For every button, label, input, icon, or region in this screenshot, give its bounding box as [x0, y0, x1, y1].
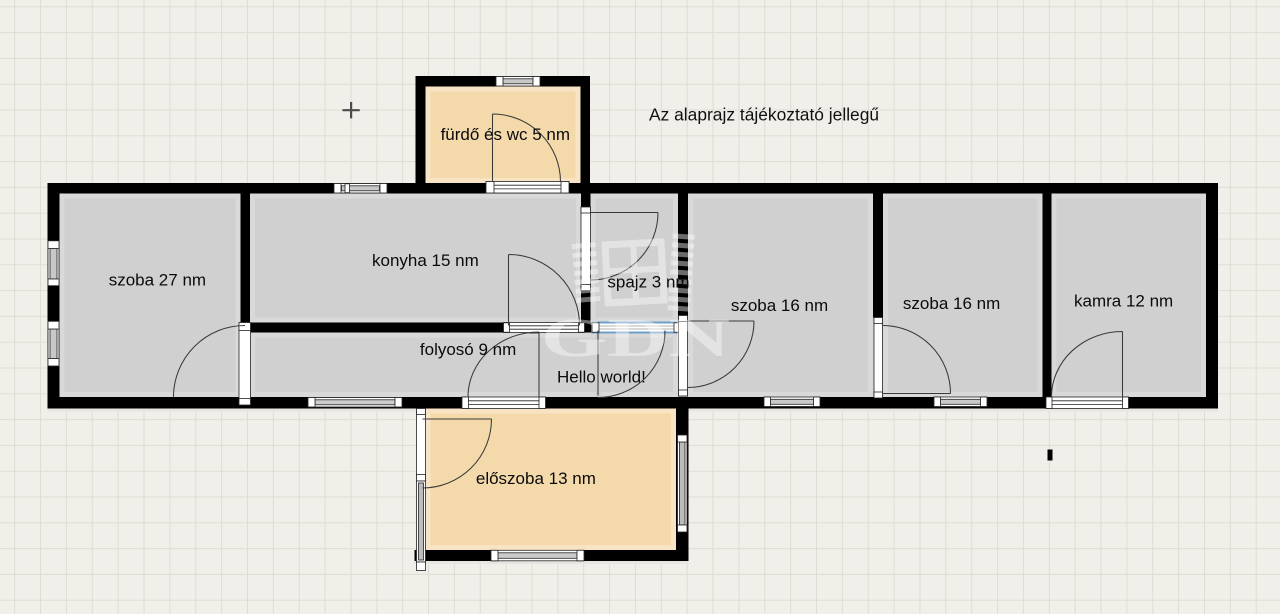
svg-text:szoba 16 nm: szoba 16 nm [731, 296, 828, 315]
svg-text:szoba 27 nm: szoba 27 nm [109, 270, 206, 289]
svg-text:kamra 12 nm: kamra 12 nm [1074, 292, 1173, 311]
svg-text:spajz 3 nm: spajz 3 nm [607, 273, 689, 292]
svg-text:Az alaprajz tájékoztató jelleg: Az alaprajz tájékoztató jellegű [649, 104, 879, 124]
svg-text:konyha 15 nm: konyha 15 nm [372, 251, 479, 270]
svg-text:szoba 16 nm: szoba 16 nm [903, 294, 1000, 313]
svg-text:GDN: GDN [541, 307, 730, 368]
svg-text:Hello world!: Hello world! [557, 367, 646, 386]
svg-text:folyosó 9 nm: folyosó 9 nm [420, 340, 516, 359]
svg-text:előszoba 13 nm: előszoba 13 nm [476, 469, 596, 488]
svg-text:fürdő és wc 5 nm: fürdő és wc 5 nm [441, 125, 570, 144]
